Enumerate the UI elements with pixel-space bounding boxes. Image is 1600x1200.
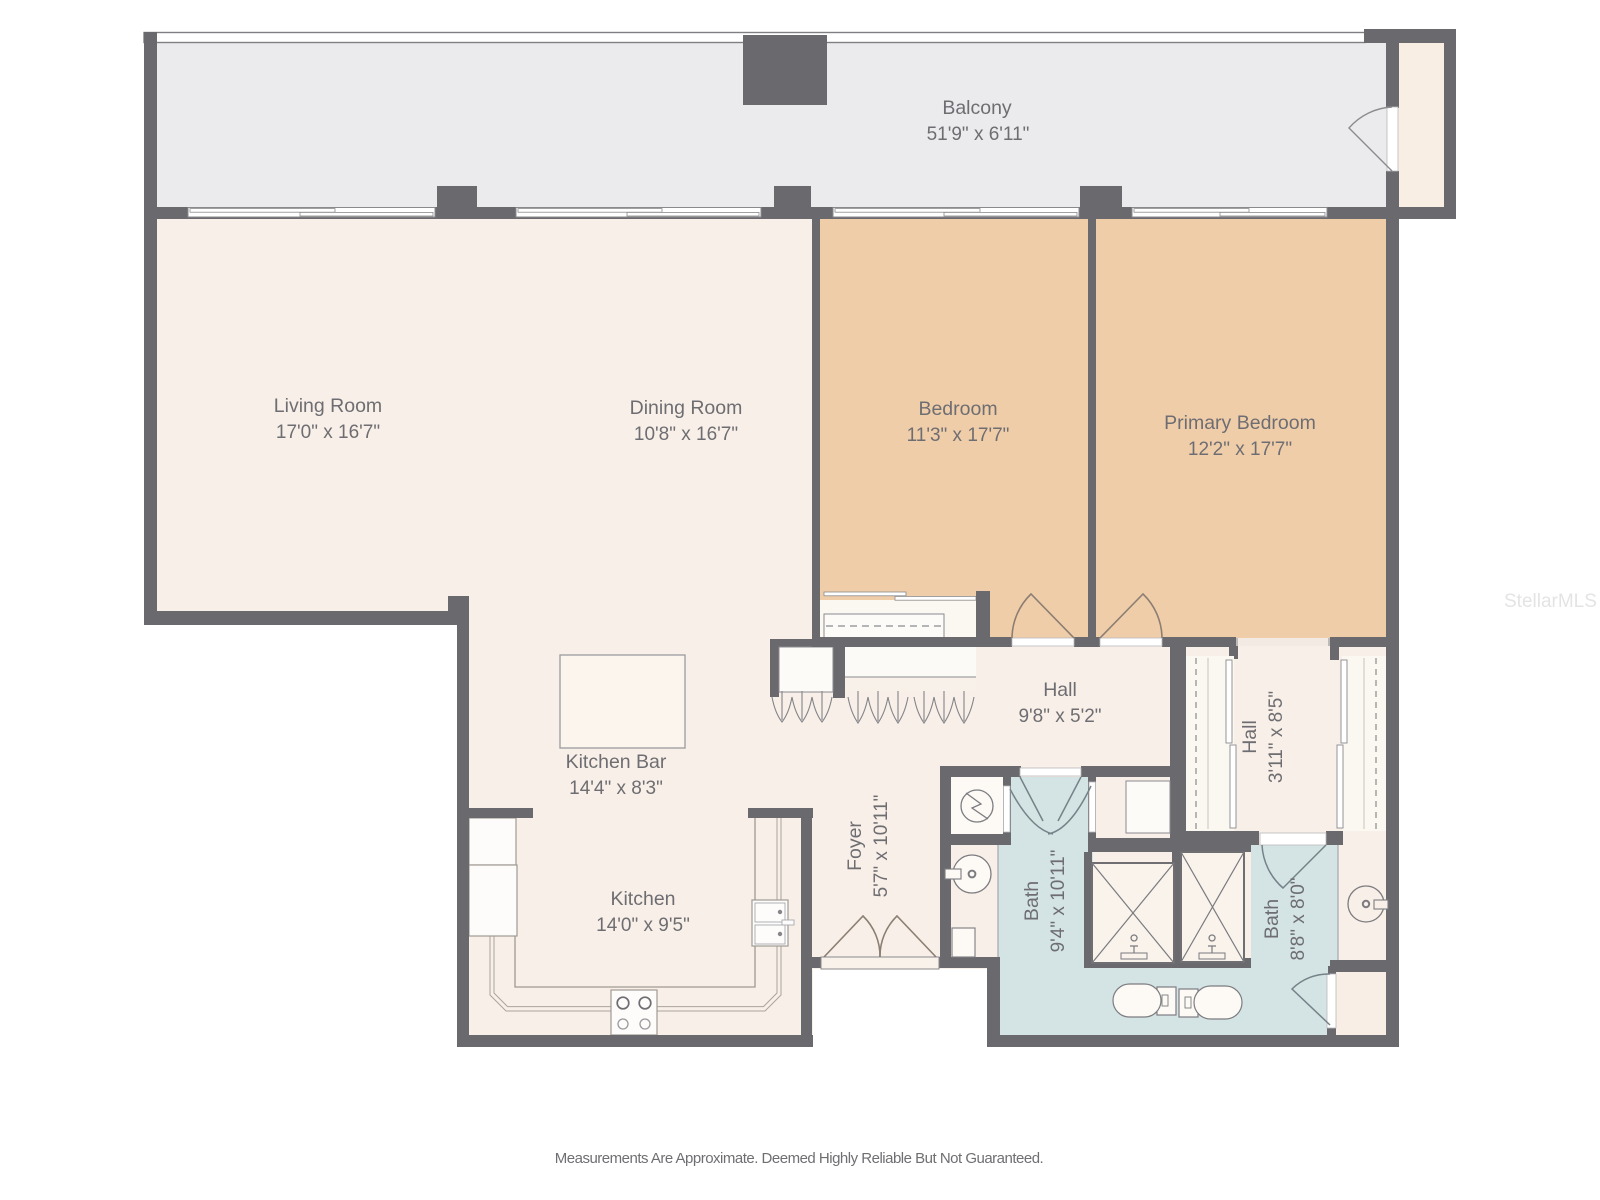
svg-text:17'0" x 16'7": 17'0" x 16'7" bbox=[276, 422, 380, 443]
svg-text:Bath: Bath bbox=[1021, 881, 1043, 921]
svg-text:Hall: Hall bbox=[1239, 720, 1261, 754]
svg-text:51'9" x 6'11": 51'9" x 6'11" bbox=[927, 124, 1030, 145]
svg-text:Living Room: Living Room bbox=[274, 395, 382, 417]
svg-text:14'4" x 8'3": 14'4" x 8'3" bbox=[569, 778, 663, 799]
svg-text:5'7" x 10'11": 5'7" x 10'11" bbox=[871, 795, 892, 898]
svg-text:Kitchen: Kitchen bbox=[610, 888, 675, 910]
svg-text:14'0" x 9'5": 14'0" x 9'5" bbox=[596, 915, 690, 936]
svg-text:Bedroom: Bedroom bbox=[918, 398, 997, 420]
svg-text:Measurements Are Approximate.: Measurements Are Approximate. Deemed Hig… bbox=[555, 1150, 1043, 1167]
svg-text:10'8" x 16'7": 10'8" x 16'7" bbox=[634, 424, 738, 445]
svg-text:12'2" x 17'7": 12'2" x 17'7" bbox=[1188, 439, 1292, 460]
svg-text:StellarMLS: StellarMLS bbox=[1504, 591, 1597, 612]
svg-text:Bath: Bath bbox=[1261, 899, 1283, 939]
svg-text:Hall: Hall bbox=[1043, 679, 1077, 701]
svg-text:Primary Bedroom: Primary Bedroom bbox=[1164, 412, 1316, 434]
svg-text:Kitchen Bar: Kitchen Bar bbox=[566, 751, 667, 773]
svg-text:9'8" x 5'2": 9'8" x 5'2" bbox=[1018, 706, 1101, 727]
svg-text:8'8" x 8'0": 8'8" x 8'0" bbox=[1288, 877, 1309, 960]
svg-text:11'3" x 17'7": 11'3" x 17'7" bbox=[907, 425, 1010, 446]
svg-text:Foyer: Foyer bbox=[844, 821, 866, 871]
svg-text:Balcony: Balcony bbox=[942, 97, 1012, 119]
svg-text:Dining Room: Dining Room bbox=[630, 397, 743, 419]
svg-text:9'4" x 10'11": 9'4" x 10'11" bbox=[1048, 850, 1069, 953]
svg-text:3'11" x 8'5": 3'11" x 8'5" bbox=[1266, 691, 1287, 783]
